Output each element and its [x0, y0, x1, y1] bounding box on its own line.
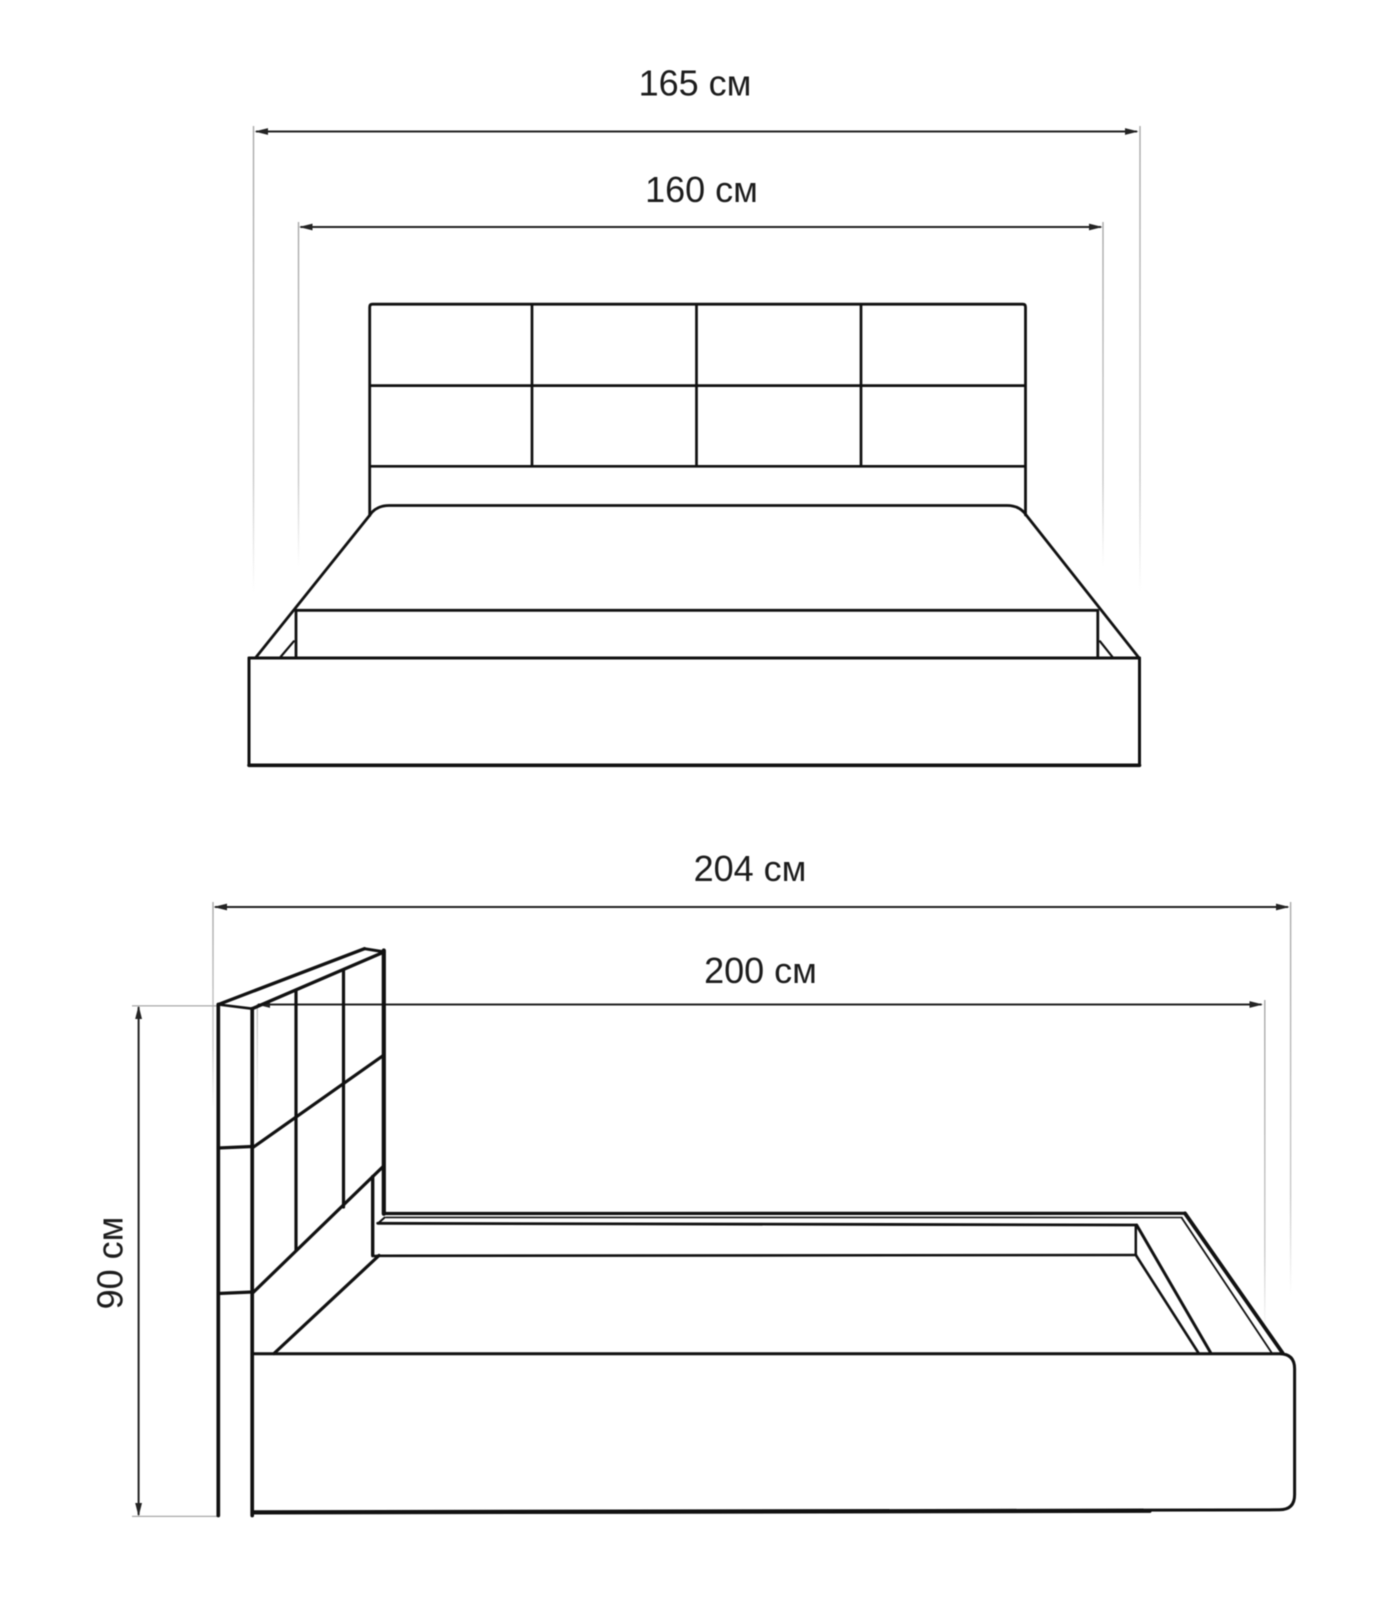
svg-text:204 см: 204 см	[694, 848, 807, 889]
svg-text:165 см: 165 см	[639, 63, 752, 104]
svg-text:160 см: 160 см	[645, 169, 758, 210]
svg-text:200 см: 200 см	[704, 950, 817, 991]
svg-text:90 см: 90 см	[90, 1217, 131, 1310]
